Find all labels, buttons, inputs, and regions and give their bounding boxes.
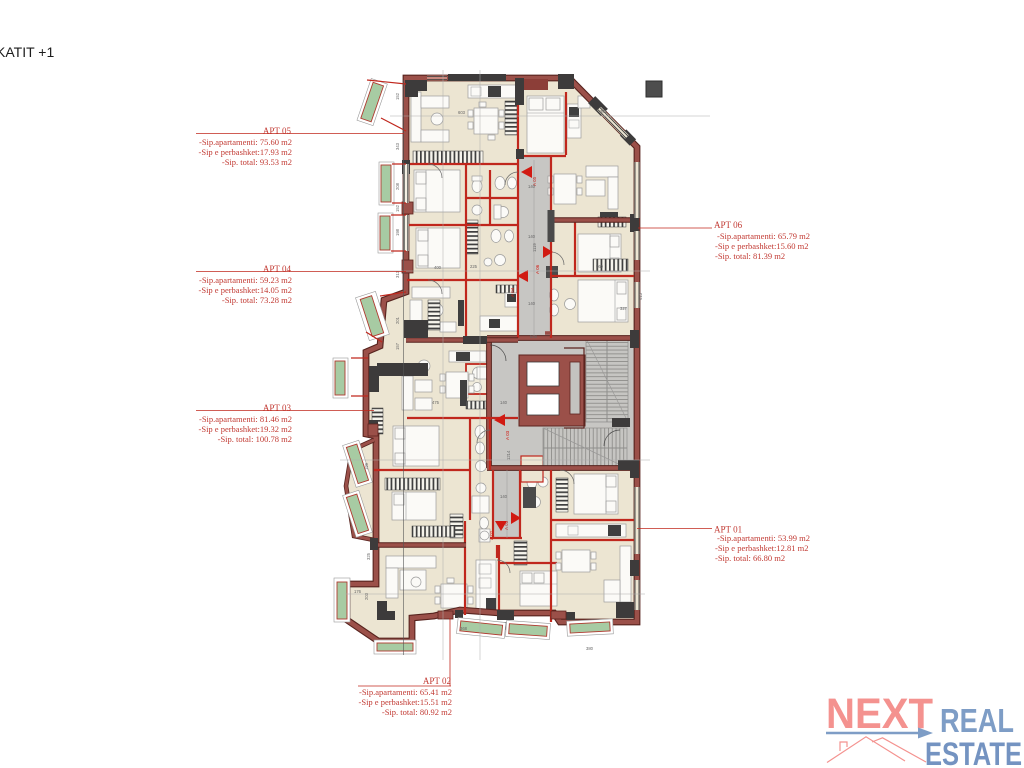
svg-text:157: 157 [395,342,400,350]
svg-text:201: 201 [395,316,400,324]
svg-text:203: 203 [364,592,369,600]
svg-text:152: 152 [395,204,400,212]
svg-text:-Sip.apartamenti: 53.99 m2: -Sip.apartamenti: 53.99 m2 [717,533,810,543]
svg-text:-Sip e perbashket:15.60 m2: -Sip e perbashket:15.60 m2 [715,241,808,251]
svg-text:ESTATE: ESTATE [925,736,1022,768]
svg-text:A 02: A 02 [489,530,494,540]
svg-text:-Sip. total: 100.78 m2: -Sip. total: 100.78 m2 [218,434,292,444]
svg-text:APT 05: APT 05 [263,126,292,136]
svg-text:152: 152 [395,92,400,100]
svg-text:327: 327 [620,306,628,311]
svg-text:A 04: A 04 [510,287,515,297]
svg-text:140: 140 [528,301,536,306]
svg-text:REAL: REAL [940,702,1014,739]
svg-text:KATIT +1: KATIT +1 [0,44,54,60]
svg-text:140: 140 [500,494,508,499]
svg-text:413: 413 [638,292,643,300]
svg-text:225: 225 [470,264,478,269]
svg-text:A 06: A 06 [535,264,540,274]
svg-text:208: 208 [395,182,400,190]
svg-text:A 01: A 01 [504,520,509,530]
svg-text:-Sip e perbashket:12.81 m2: -Sip e perbashket:12.81 m2 [715,543,808,553]
svg-text:-Sip.apartamenti: 59.23 m2: -Sip.apartamenti: 59.23 m2 [199,275,292,285]
svg-text:140: 140 [528,184,536,189]
svg-text:-Sip. total: 93.53 m2: -Sip. total: 93.53 m2 [222,157,292,167]
svg-text:NEXT: NEXT [826,690,933,738]
svg-text:APT 06: APT 06 [714,220,743,230]
svg-text:-Sip.apartamenti: 65.41 m2: -Sip.apartamenti: 65.41 m2 [359,687,452,697]
svg-text:1214: 1214 [506,450,511,460]
svg-text:-Sip.apartamenti: 65.79 m2: -Sip.apartamenti: 65.79 m2 [717,231,810,241]
svg-text:-Sip. total: 80.92 m2: -Sip. total: 80.92 m2 [382,707,452,717]
svg-text:199: 199 [364,462,369,470]
svg-text:325: 325 [366,552,371,560]
svg-text:140: 140 [500,400,508,405]
svg-text:343: 343 [395,142,400,150]
svg-text:APT 02: APT 02 [423,676,451,686]
svg-text:198: 198 [395,228,400,236]
svg-text:-Sip. total: 66.80 m2: -Sip. total: 66.80 m2 [715,553,785,563]
svg-text:603: 603 [458,110,466,115]
svg-text:-Sip. total: 81.39 m2: -Sip. total: 81.39 m2 [715,251,785,261]
svg-text:APT 03: APT 03 [263,403,292,413]
svg-text:-Sip.apartamenti: 81.46 m2: -Sip.apartamenti: 81.46 m2 [199,414,292,424]
svg-text:1119: 1119 [532,243,537,252]
svg-text:-Sip e perbashket:15.51 m2: -Sip e perbashket:15.51 m2 [359,697,452,707]
svg-text:361: 361 [600,109,608,114]
svg-text:400: 400 [434,265,442,270]
svg-text:-Sip.apartamenti: 75.60 m2: -Sip.apartamenti: 75.60 m2 [199,137,292,147]
svg-text:-Sip e perbashket:19.32 m2: -Sip e perbashket:19.32 m2 [199,424,292,434]
svg-text:-Sip e perbashket:17.93 m2: -Sip e perbashket:17.93 m2 [199,147,292,157]
svg-text:560: 560 [596,264,604,269]
svg-text:475: 475 [432,400,440,405]
svg-text:508: 508 [530,334,538,339]
svg-text:APT 04: APT 04 [263,264,292,274]
svg-text:-Sip. total: 73.28 m2: -Sip. total: 73.28 m2 [222,295,292,305]
svg-text:176: 176 [354,589,362,594]
svg-text:380: 380 [586,646,594,651]
svg-text:368: 368 [460,626,468,631]
svg-text:-Sip e perbashket:14.05 m2: -Sip e perbashket:14.05 m2 [199,285,292,295]
svg-text:A 03: A 03 [505,430,510,440]
svg-text:140: 140 [528,234,536,239]
